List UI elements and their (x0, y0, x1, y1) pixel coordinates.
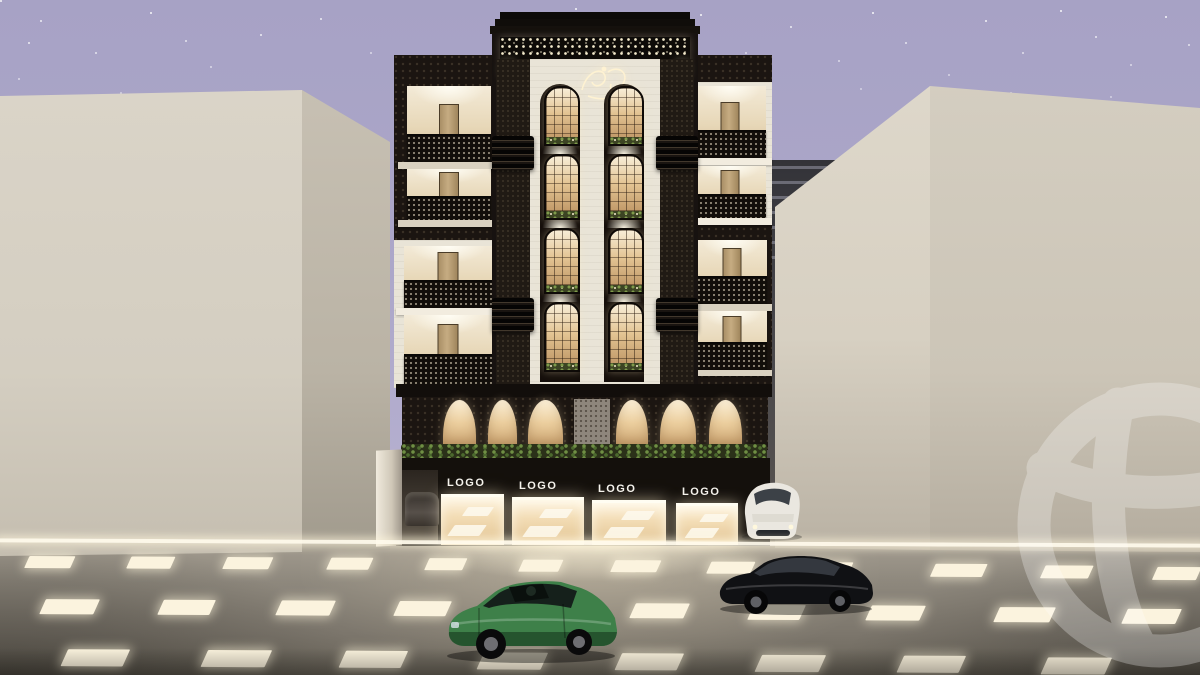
scene-canvas: LOGO LOGO LOGO LOGO (0, 0, 1200, 675)
dribbble-watermark-icon (1005, 372, 1200, 675)
black-sedan (716, 551, 878, 617)
